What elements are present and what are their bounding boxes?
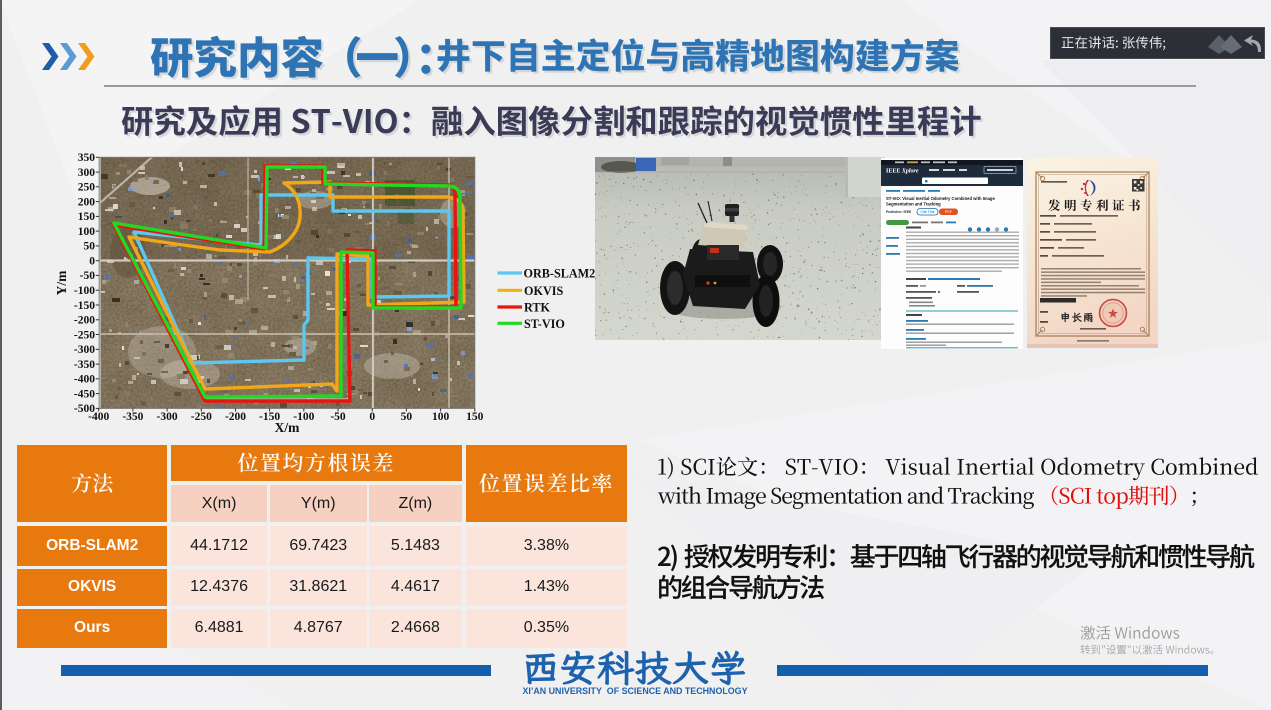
svg-text:ST-VIO: Visual Inertial Odomet: ST-VIO: Visual Inertial Odometry Combine… [886,196,995,201]
svg-text:350: 350 [78,152,96,164]
svg-text:-400: -400 [88,411,109,423]
svg-text:OKVIS: OKVIS [524,284,564,298]
svg-text:-200: -200 [225,411,246,423]
svg-text:ORB-SLAM2: ORB-SLAM2 [524,266,596,280]
svg-text:-350: -350 [122,411,143,423]
svg-text:-350: -350 [74,359,95,371]
svg-text:-300: -300 [74,344,95,356]
svg-text:0: 0 [369,411,375,423]
svg-text:PDF: PDF [945,210,953,214]
svg-text:200: 200 [78,196,96,208]
svg-text:ST-VIO: ST-VIO [524,317,565,331]
svg-text:-150: -150 [74,300,95,312]
svg-text:300: 300 [78,167,96,179]
svg-text:-50: -50 [80,270,96,282]
svg-text:50: 50 [84,241,96,253]
svg-text:-450: -450 [74,388,95,400]
svg-text:100: 100 [432,411,450,423]
svg-text:-250: -250 [191,411,212,423]
svg-text:0: 0 [89,256,95,268]
svg-text:X/m: X/m [275,420,301,435]
svg-text:150: 150 [78,211,96,223]
svg-text:RTK: RTK [524,301,551,315]
svg-text:Publisher: IEEE: Publisher: IEEE [886,210,912,214]
svg-text:Segmentation and Tracking: Segmentation and Tracking [886,201,941,206]
svg-text:-50: -50 [330,411,346,423]
svg-text:50: 50 [401,411,413,423]
svg-text:-200: -200 [74,315,95,327]
svg-text:IEEE Xplore: IEEE Xplore [886,169,919,175]
svg-text:-300: -300 [157,411,178,423]
svg-text:250: 250 [78,182,96,194]
svg-text:-250: -250 [74,329,95,341]
svg-text:Cite This: Cite This [920,210,934,214]
svg-text:150: 150 [466,411,484,423]
svg-text:Y/m: Y/m [54,270,69,296]
svg-text:-400: -400 [74,374,95,386]
svg-text:-100: -100 [74,285,95,297]
svg-text:100: 100 [78,226,96,238]
